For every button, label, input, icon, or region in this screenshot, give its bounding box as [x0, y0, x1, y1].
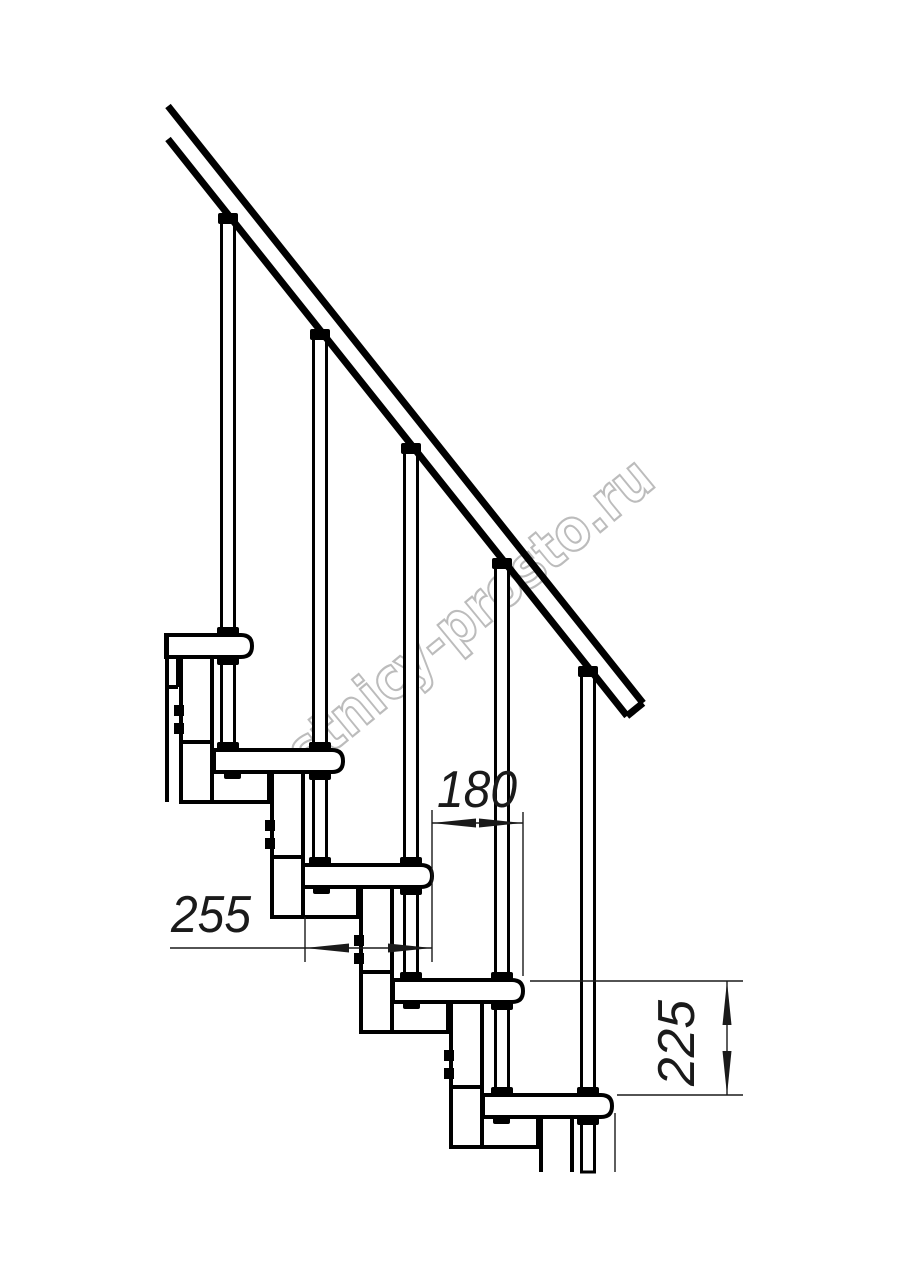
- baluster-clamp: [491, 1087, 513, 1096]
- baluster-clamp: [309, 771, 331, 780]
- dim-label-255: 255: [170, 886, 252, 944]
- dim-label-225: 225: [648, 999, 706, 1087]
- connector-tab: [444, 1068, 454, 1079]
- connector-tab: [354, 935, 364, 946]
- column-module: [444, 1000, 538, 1147]
- baluster-rod: [496, 565, 509, 1095]
- baluster-clamp: [309, 857, 331, 866]
- tread: [303, 865, 432, 887]
- baluster-clamp: [217, 742, 239, 751]
- connector-tab: [174, 705, 184, 716]
- column-module: [354, 885, 448, 1032]
- dimension-labels: 180 255 225: [170, 761, 706, 1087]
- baluster-clamp: [400, 886, 422, 895]
- baluster-clamp: [217, 627, 239, 636]
- column-module: [541, 1117, 572, 1172]
- drawing-page: lestnicy-prosto.ru: [0, 0, 914, 1280]
- connector-tab: [265, 820, 275, 831]
- tread: [483, 1095, 612, 1117]
- connector-tab: [265, 838, 275, 849]
- baluster-clamp: [491, 1001, 513, 1010]
- column-module: [265, 770, 358, 917]
- tread-mount: [403, 1001, 420, 1009]
- tread: [393, 980, 523, 1002]
- baluster-clamp: [400, 857, 422, 866]
- baluster-rod: [222, 220, 235, 750]
- handrail-end-cut: [627, 703, 643, 716]
- tread-mount: [493, 1116, 510, 1124]
- baluster-rod: [405, 450, 418, 980]
- arrow-left: [305, 944, 349, 953]
- staircase-elevation-drawing: lestnicy-prosto.ru: [0, 0, 914, 1280]
- arrow-down: [723, 1051, 732, 1095]
- column-module: [168, 657, 178, 687]
- arrow-up: [723, 981, 732, 1025]
- arrow-left: [432, 819, 476, 828]
- baluster-clamp: [309, 742, 331, 751]
- baluster-clamp: [217, 656, 239, 665]
- baluster-clamp: [400, 972, 422, 981]
- connector-tab: [174, 723, 184, 734]
- connector-tab: [354, 953, 364, 964]
- tread: [214, 750, 343, 772]
- tread-mount: [313, 886, 330, 894]
- tread-mount: [224, 771, 241, 779]
- connector-tab: [444, 1050, 454, 1061]
- dim-label-180: 180: [437, 761, 517, 819]
- baluster-clamp: [577, 1087, 599, 1096]
- baluster-clamp: [491, 972, 513, 981]
- baluster-clamp: [577, 1116, 599, 1125]
- baluster-rod: [314, 336, 327, 865]
- tread: [166, 635, 252, 657]
